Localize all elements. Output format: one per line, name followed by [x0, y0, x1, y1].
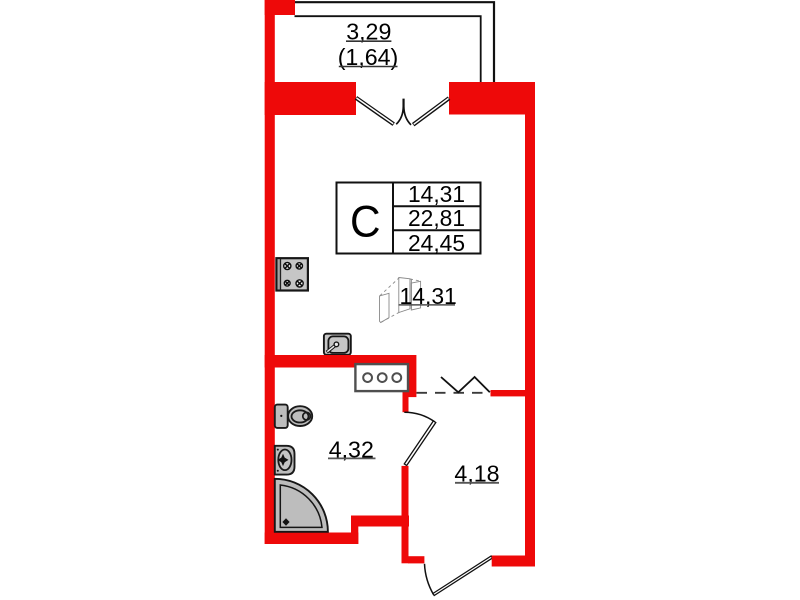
- svg-text:22,81: 22,81: [408, 205, 465, 231]
- svg-text:24,45: 24,45: [408, 230, 465, 256]
- svg-text:C: C: [350, 197, 381, 246]
- svg-text:14,31: 14,31: [408, 181, 465, 207]
